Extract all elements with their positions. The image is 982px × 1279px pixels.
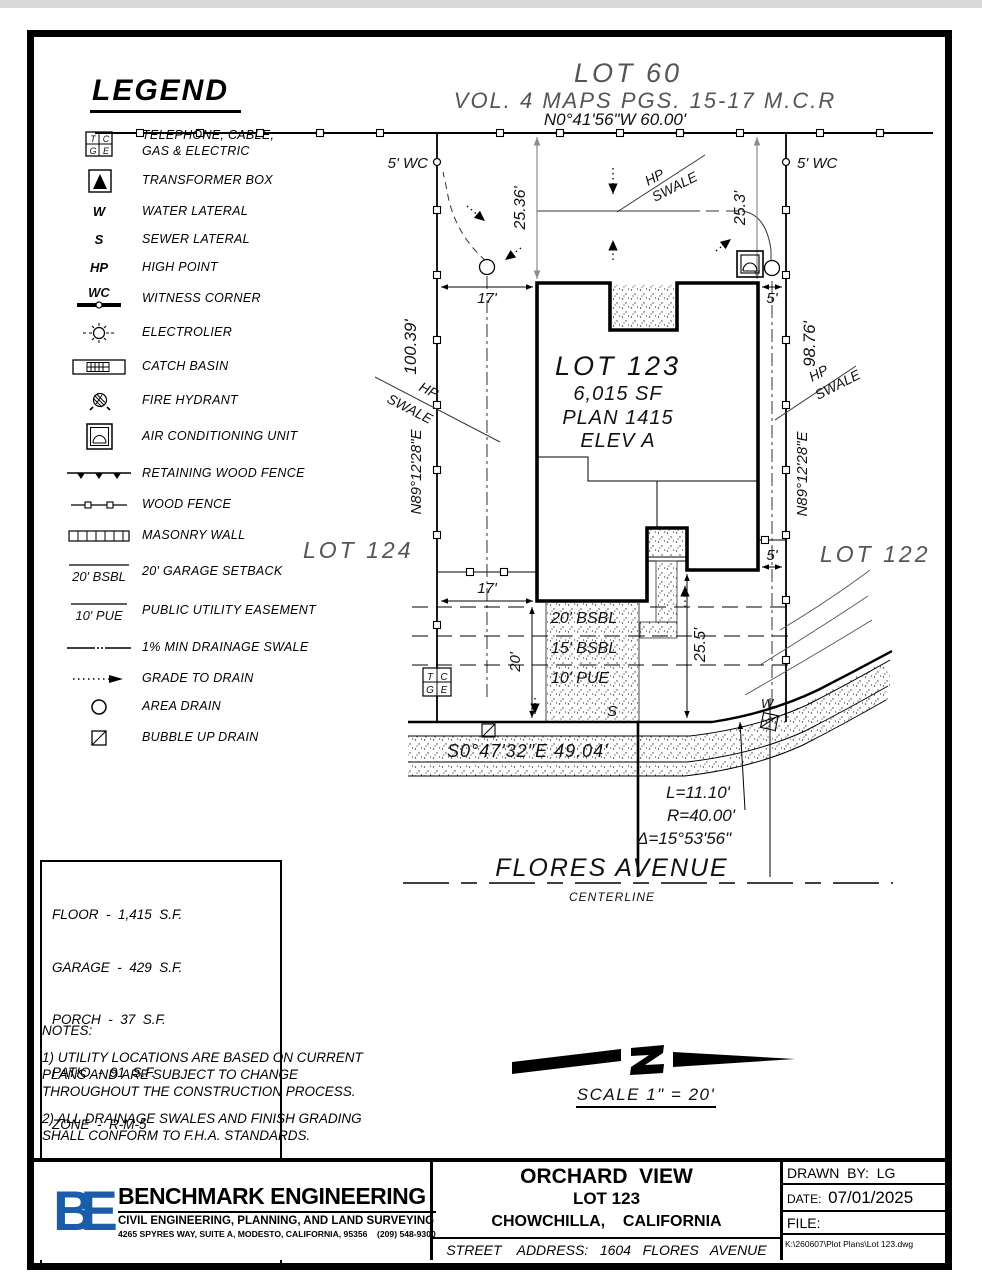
legend-item-label: WOOD FENCE bbox=[142, 497, 368, 513]
lot-60-label: LOT 60 bbox=[574, 58, 682, 88]
hp-label-left: HP bbox=[417, 378, 442, 401]
project-name: ORCHARD VIEW bbox=[433, 1165, 780, 1189]
svg-text:E: E bbox=[103, 146, 110, 156]
entry-walk bbox=[656, 561, 677, 622]
svg-text:C: C bbox=[103, 134, 110, 144]
notes-title: NOTES: bbox=[42, 1022, 394, 1039]
legend-item-label: WATER LATERAL bbox=[142, 204, 368, 220]
area-drain-right bbox=[765, 261, 780, 276]
legend-item-label: AIR CONDITIONING UNIT bbox=[142, 429, 368, 445]
legend-item-high-point: HP HIGH POINT bbox=[56, 256, 368, 279]
svg-text:WC: WC bbox=[88, 285, 110, 300]
setback-lines: 20' BSBL 15' BSBL 10' PUE bbox=[412, 607, 788, 687]
legend-item-label: 1% MIN DRAINAGE SWALE bbox=[142, 640, 368, 656]
dim-25-36: 25.36' bbox=[512, 186, 529, 231]
svg-text:10' PUE: 10' PUE bbox=[75, 608, 123, 623]
legend: LEGEND TC GE TELEPHONE, CABLE, GAS & ELE… bbox=[56, 74, 368, 752]
legend-item-fire-hydrant: FIRE HYDRANT bbox=[56, 386, 368, 415]
legend-items: TC GE TELEPHONE, CABLE, GAS & ELECTRIC T… bbox=[56, 127, 368, 752]
legend-item-witness-corner: WC WITNESS CORNER bbox=[56, 284, 368, 313]
scale-bar: SCALE 1" = 20' bbox=[512, 1045, 795, 1107]
lot-122-label: LOT 122 bbox=[820, 541, 931, 567]
dim-17-bottom: 17' bbox=[477, 580, 498, 597]
legend-item-label: WITNESS CORNER bbox=[142, 291, 368, 307]
high-point-icon: HP bbox=[56, 260, 142, 275]
svg-text:G: G bbox=[89, 146, 96, 156]
bsbl-20-label: 20' BSBL bbox=[550, 610, 617, 627]
title-block-company-cell: BE BENCHMARK ENGINEERING CIVIL ENGINEERI… bbox=[34, 1162, 430, 1260]
sewer-lateral-label: S bbox=[607, 703, 617, 720]
sewer-lateral-icon: S bbox=[56, 232, 142, 247]
patio-area bbox=[611, 285, 675, 329]
legend-item-electrolier: ELECTROLIER bbox=[56, 318, 368, 347]
legend-item-label: CATCH BASIN bbox=[142, 359, 368, 375]
legend-item-label: AREA DRAIN bbox=[142, 699, 368, 715]
bsbl-15-label: 15' BSBL bbox=[551, 640, 617, 657]
legend-item-telephone-cable-gas-electric: TC GE TELEPHONE, CABLE, GAS & ELECTRIC bbox=[56, 127, 368, 161]
adjacent-lot-header: LOT 60 VOL. 4 MAPS PGS. 15-17 M.C.R N0°4… bbox=[454, 58, 836, 129]
benchmark-logo: BE bbox=[40, 1187, 118, 1235]
bubble-up-drain bbox=[482, 724, 495, 737]
curve-radius-label: R=40.00' bbox=[667, 806, 736, 825]
date-label: DATE: bbox=[787, 1192, 821, 1206]
legend-item-grade-to-drain: GRADE TO DRAIN bbox=[56, 667, 368, 690]
east-line-bearing: N89°12'28"E bbox=[794, 430, 811, 516]
legend-item-label: TELEPHONE, CABLE, GAS & ELECTRIC bbox=[142, 128, 368, 159]
witness-corner-marker-right bbox=[783, 159, 790, 166]
svg-text:T: T bbox=[90, 134, 97, 144]
curve-length-label: L=11.10' bbox=[666, 783, 731, 802]
east-line-length: 98.76' bbox=[800, 320, 819, 367]
legend-item-label: SEWER LATERAL bbox=[142, 232, 368, 248]
legend-item-wood-fence: WOOD FENCE bbox=[56, 493, 368, 516]
company-address: 4265 SPYRES WAY, SUITE A, MODESTO, CALIF… bbox=[118, 1229, 436, 1239]
notes-section: NOTES: 1) UTILITY LOCATIONS ARE BASED ON… bbox=[42, 1022, 394, 1154]
company-info: BENCHMARK ENGINEERING CIVIL ENGINEERING,… bbox=[118, 1183, 436, 1239]
file-path: K:\260607\Plot Plans\Lot 123.dwg bbox=[783, 1235, 945, 1253]
date-value: 07/01/2025 bbox=[828, 1188, 913, 1207]
legend-item-water-lateral: W WATER LATERAL bbox=[56, 200, 368, 223]
company-tagline: CIVIL ENGINEERING, PLANNING, AND LAND SU… bbox=[118, 1215, 436, 1227]
date-row: DATE: 07/01/2025 bbox=[783, 1185, 945, 1212]
title-block-project-cell: ORCHARD VIEW LOT 123 CHOWCHILLA, CALIFOR… bbox=[430, 1162, 783, 1260]
tcge-letter-t: T bbox=[427, 672, 434, 683]
lot-plan-label: PLAN 1415 bbox=[562, 407, 673, 429]
dim-5-top: 5' bbox=[766, 290, 778, 307]
water-lateral-icon: W bbox=[56, 204, 142, 219]
stat-garage: GARAGE - 429 S.F. bbox=[52, 959, 270, 977]
street-frontage-bearing: S0°47'32"E 49.04' bbox=[447, 741, 609, 761]
tcge-letter-e: E bbox=[441, 685, 448, 696]
pue-10-label: 10' PUE bbox=[551, 670, 610, 687]
legend-item-label: HIGH POINT bbox=[142, 260, 368, 276]
legend-item-area-drain: AREA DRAIN bbox=[56, 695, 368, 718]
curve-delta-label: Δ=15°53'56" bbox=[636, 829, 732, 848]
file-row: FILE: bbox=[783, 1212, 945, 1235]
legend-item-catch-basin: CATCH BASIN bbox=[56, 352, 368, 381]
legend-item-sewer-lateral: S SEWER LATERAL bbox=[56, 228, 368, 251]
legend-item-label: RETAINING WOOD FENCE bbox=[142, 466, 368, 482]
title-block: BE BENCHMARK ENGINEERING CIVIL ENGINEERI… bbox=[34, 1158, 945, 1260]
legend-item-transformer-box: TRANSFORMER BOX bbox=[56, 166, 368, 195]
legend-item-label: PUBLIC UTILITY EASEMENT bbox=[142, 603, 368, 619]
stat-floor: FLOOR - 1,415 S.F. bbox=[52, 906, 270, 924]
title-block-meta-cell: DRAWN BY: LG DATE: 07/01/2025 FILE: K:\2… bbox=[783, 1162, 945, 1260]
legend-item-public-utility-easement: 10' PUE PUBLIC UTILITY EASEMENT bbox=[56, 594, 368, 628]
project-city: CHOWCHILLA, CALIFORNIA bbox=[433, 1213, 780, 1237]
svg-text:20' BSBL: 20' BSBL bbox=[71, 569, 126, 584]
project-lot: LOT 123 bbox=[433, 1189, 780, 1209]
scale-label: SCALE 1" = 20' bbox=[577, 1085, 716, 1104]
drawn-by-row: DRAWN BY: LG bbox=[783, 1162, 945, 1185]
legend-item-label: MASONRY WALL bbox=[142, 528, 368, 544]
legend-item-label: GRADE TO DRAIN bbox=[142, 671, 368, 687]
legend-item-label: FIRE HYDRANT bbox=[142, 393, 368, 409]
dim-5-bottom: 5' bbox=[766, 547, 778, 564]
ac-unit bbox=[737, 251, 763, 277]
legend-item-label: TRANSFORMER BOX bbox=[142, 173, 368, 189]
dim-25-3: 25.3' bbox=[732, 190, 749, 226]
legend-item-drainage-swale: 1% MIN DRAINAGE SWALE bbox=[56, 633, 368, 662]
legend-item-garage-setback: 20' BSBL 20' GARAGE SETBACK bbox=[56, 555, 368, 589]
plot-plan-sheet: { "header": { "lot_above": "LOT 60", "ma… bbox=[0, 0, 982, 1279]
witness-corner-right-label: 5' WC bbox=[797, 155, 838, 172]
witness-corner-marker-left bbox=[434, 159, 441, 166]
dim-20: 20' bbox=[507, 651, 524, 673]
tcge-letter-c: C bbox=[440, 672, 448, 683]
street-flores-avenue: S0°47'32"E 49.04' L=11.10' R=40.00' Δ=15… bbox=[403, 570, 893, 904]
witness-corner-left-label: 5' WC bbox=[388, 155, 429, 172]
legend-item-air-conditioning-unit: AIR CONDITIONING UNIT bbox=[56, 420, 368, 454]
lot-name-label: LOT 123 bbox=[555, 351, 681, 381]
legend-title: LEGEND bbox=[90, 74, 241, 113]
company-name: BENCHMARK ENGINEERING bbox=[118, 1183, 436, 1213]
legend-item-label: 20' GARAGE SETBACK bbox=[142, 564, 368, 580]
note-1: 1) UTILITY LOCATIONS ARE BASED ON CURREN… bbox=[42, 1049, 394, 1100]
area-drain-left bbox=[480, 260, 495, 275]
legend-item-label: ELECTROLIER bbox=[142, 325, 368, 341]
note-2: 2) ALL DRAINAGE SWALES AND FINISH GRADIN… bbox=[42, 1110, 394, 1144]
lot-elev-label: ELEV A bbox=[580, 430, 655, 452]
centerline-label: CENTERLINE bbox=[569, 890, 655, 904]
project-street-address: STREET ADDRESS: 1604 FLORES AVENUE bbox=[433, 1237, 780, 1260]
legend-item-retaining-wood-fence: RETAINING WOOD FENCE bbox=[56, 459, 368, 488]
west-line-bearing: N89°12'28"E bbox=[408, 428, 425, 514]
west-line-length: 100.39' bbox=[401, 319, 420, 375]
tcge-letter-g: G bbox=[426, 685, 434, 696]
legend-item-bubble-up-drain: BUBBLE UP DRAIN bbox=[56, 723, 368, 752]
dim-17-top: 17' bbox=[477, 290, 498, 307]
north-bearing-label: N0°41'56"W 60.00' bbox=[544, 110, 687, 129]
porch-area bbox=[649, 529, 686, 556]
legend-item-label: BUBBLE UP DRAIN bbox=[142, 730, 368, 746]
street-name-label: FLORES AVENUE bbox=[495, 854, 728, 882]
legend-item-masonry-wall: MASONRY WALL bbox=[56, 521, 368, 550]
lot-area-label: 6,015 SF bbox=[573, 383, 663, 405]
dim-25-5: 25.5' bbox=[692, 627, 709, 663]
